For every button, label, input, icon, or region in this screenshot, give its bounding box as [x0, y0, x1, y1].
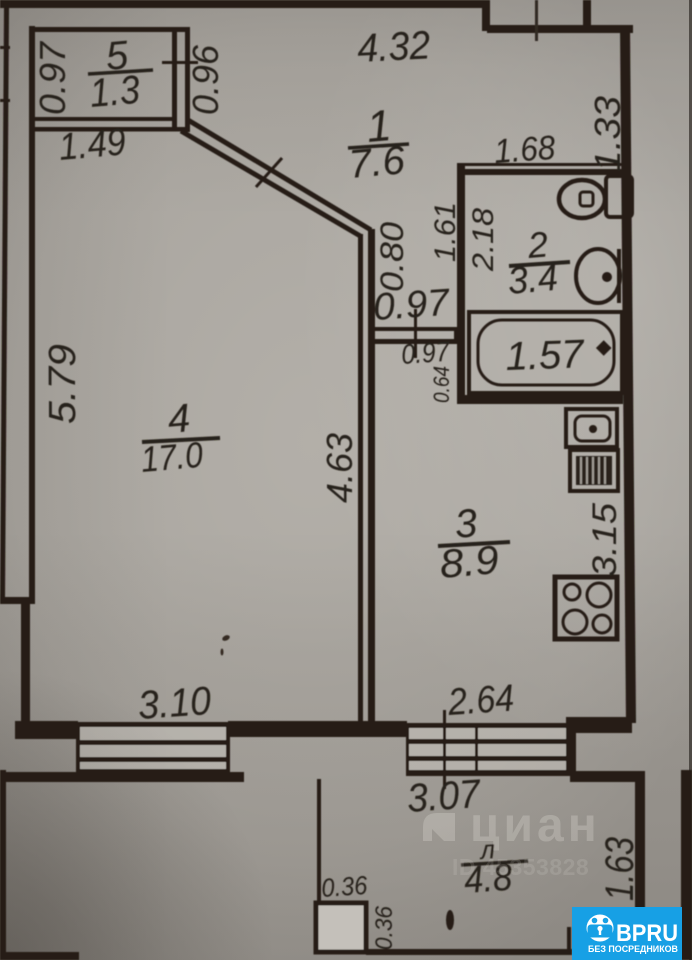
svg-text:1.49: 1.49: [57, 121, 127, 169]
svg-text:0.64: 0.64: [429, 366, 454, 403]
svg-text:0.96: 0.96: [185, 44, 226, 115]
svg-text:2.18: 2.18: [467, 208, 500, 272]
svg-text:3.15: 3.15: [586, 503, 624, 577]
svg-text:0.36: 0.36: [371, 905, 398, 950]
svg-text:17.0: 17.0: [139, 434, 204, 480]
svg-text:0.97: 0.97: [372, 282, 453, 329]
svg-text:ID 45353828: ID 45353828: [452, 854, 589, 880]
svg-text:0.97: 0.97: [32, 40, 73, 115]
svg-text:БЕЗ ПОСРЕДНИКОВ: БЕЗ ПОСРЕДНИКОВ: [588, 944, 678, 954]
svg-text:0.36: 0.36: [320, 870, 368, 903]
svg-text:1.63: 1.63: [598, 837, 642, 901]
svg-text:1.61: 1.61: [429, 202, 462, 262]
svg-text:1.3: 1.3: [88, 68, 142, 116]
svg-text:8.9: 8.9: [438, 538, 501, 587]
svg-text:BPRU: BPRU: [616, 920, 678, 947]
svg-text:4.63: 4.63: [319, 433, 360, 503]
svg-text:5.79: 5.79: [42, 344, 84, 424]
svg-text:1.33: 1.33: [587, 96, 628, 172]
svg-text:7.6: 7.6: [347, 138, 407, 187]
svg-text:0.97: 0.97: [400, 336, 451, 370]
svg-text:1.68: 1.68: [493, 129, 557, 171]
svg-text:3.10: 3.10: [137, 679, 213, 728]
svg-text:1.57: 1.57: [505, 332, 586, 379]
svg-text:циан: циан: [470, 799, 601, 852]
svg-text:3.4: 3.4: [506, 257, 559, 303]
svg-text:4.32: 4.32: [356, 23, 431, 71]
svg-text:0.80: 0.80: [374, 222, 410, 292]
svg-text:2.64: 2.64: [446, 677, 516, 724]
